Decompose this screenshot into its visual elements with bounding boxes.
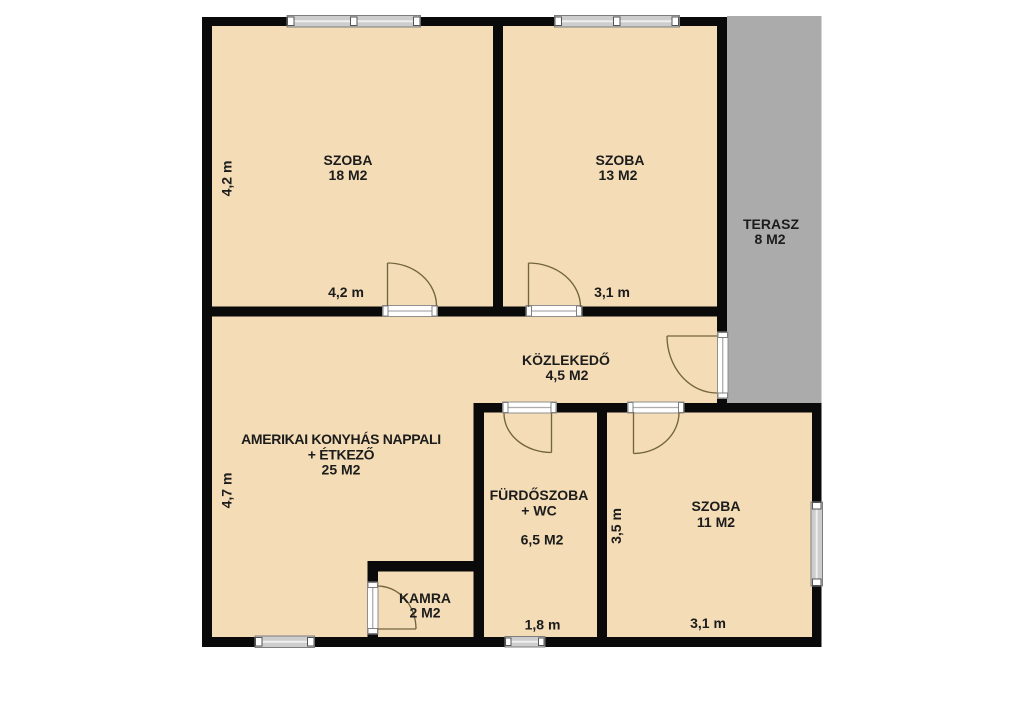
- svg-text:3,1 m: 3,1 m: [690, 615, 726, 631]
- svg-text:SZOBA: SZOBA: [596, 152, 645, 168]
- svg-text:6,5 M2: 6,5 M2: [521, 532, 564, 548]
- svg-text:KÖZLEKEDŐ: KÖZLEKEDŐ: [522, 351, 610, 368]
- svg-text:SZOBA: SZOBA: [692, 498, 741, 514]
- svg-text:SZOBA: SZOBA: [324, 152, 373, 168]
- svg-text:18 M2: 18 M2: [329, 167, 368, 183]
- svg-text:FÜRDŐSZOBA: FÜRDŐSZOBA: [490, 486, 589, 503]
- svg-text:2 M2: 2 M2: [409, 605, 440, 621]
- svg-text:4,2 m: 4,2 m: [219, 161, 235, 197]
- svg-text:13 M2: 13 M2: [599, 167, 638, 183]
- svg-text:TERASZ: TERASZ: [743, 216, 799, 232]
- svg-text:3,1 m: 3,1 m: [594, 284, 630, 300]
- svg-text:11 M2: 11 M2: [697, 514, 735, 530]
- svg-text:4,2 m: 4,2 m: [328, 284, 364, 300]
- svg-text:+ ÉTKEZŐ: + ÉTKEZŐ: [308, 446, 375, 463]
- svg-text:+ WC: + WC: [521, 503, 556, 519]
- svg-text:4,7 m: 4,7 m: [219, 473, 235, 509]
- svg-text:4,5 M2: 4,5 M2: [546, 367, 589, 383]
- svg-text:AMERIKAI KONYHÁS NAPPALI: AMERIKAI KONYHÁS NAPPALI: [241, 431, 441, 447]
- svg-text:1,8 m: 1,8 m: [525, 617, 561, 633]
- svg-text:3,5 m: 3,5 m: [608, 508, 624, 544]
- svg-text:8 M2: 8 M2: [754, 231, 785, 247]
- svg-text:25 M2: 25 M2: [322, 462, 361, 478]
